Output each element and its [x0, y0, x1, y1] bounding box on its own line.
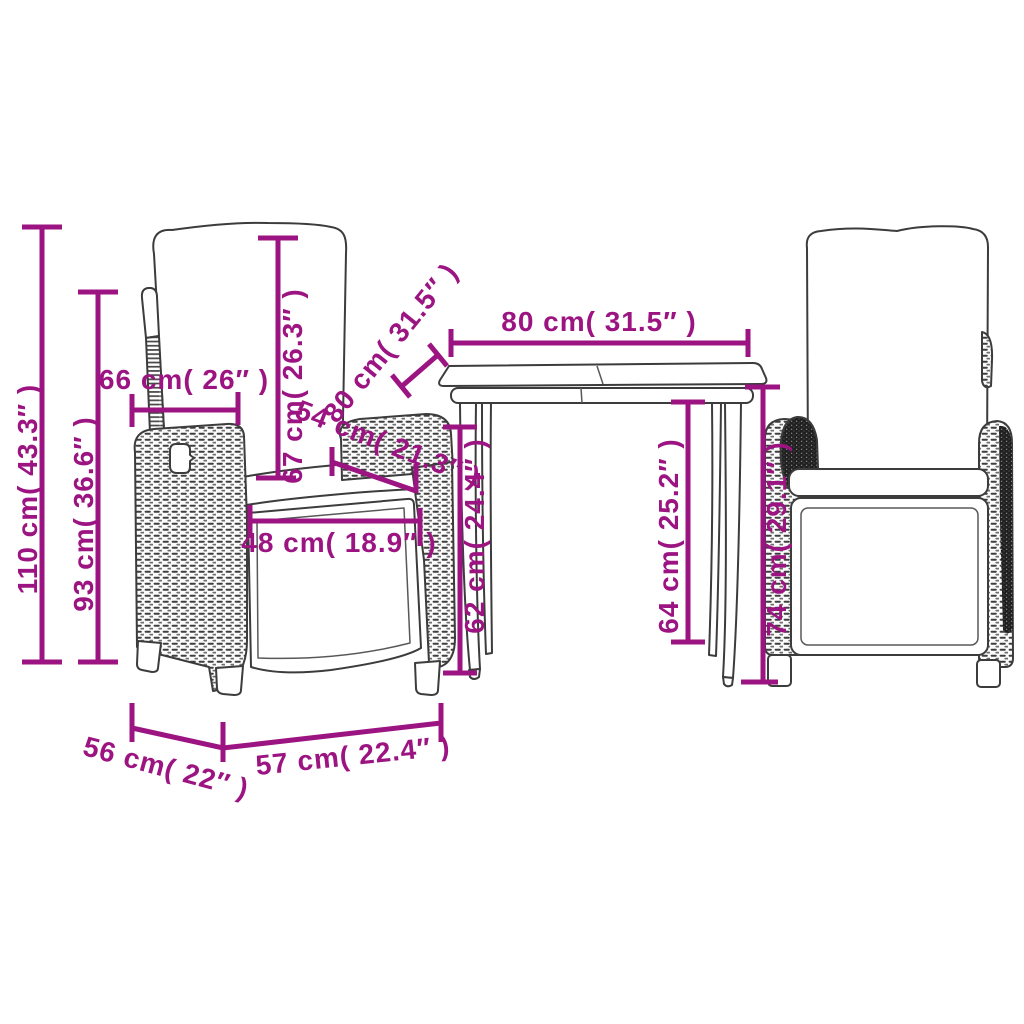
table-leg-back-right	[709, 403, 721, 656]
left-chair-mid-foot	[216, 666, 243, 695]
dim-label-backrest-height: 67 cm( 26.3″ )	[277, 288, 309, 484]
dim-label-seat-clearance: 62 cm( 24.4″ )	[459, 438, 491, 634]
dim-label-chair-back-height: 93 cm( 36.6″ )	[68, 416, 100, 612]
furniture-illustration	[0, 0, 1024, 1024]
right-chair	[765, 226, 1013, 687]
dim-label-chair-back-width: 66 cm( 26″ )	[99, 364, 269, 396]
right-chair-back-cushion	[807, 226, 988, 482]
table-leg-front-right	[723, 403, 741, 678]
table-foot-right	[723, 677, 733, 686]
left-chair-front-foot	[415, 661, 440, 695]
right-chair-seat-cushion	[789, 469, 988, 496]
dim-label-table-width: 80 cm( 31.5″ )	[501, 306, 697, 338]
dim-label-table-height: 74 cm( 29.1″ )	[761, 441, 793, 637]
left-chair-rear-foot	[137, 641, 161, 672]
dim-label-table-clearance: 64 cm( 25.2″ )	[653, 438, 685, 634]
right-chair-back-weave-edge	[982, 332, 992, 387]
left-chair-recline-rod-handle	[142, 288, 159, 338]
product-dimension-diagram: 110 cm( 43.3″ ) 93 cm( 36.6″ ) 66 cm( 26…	[0, 0, 1024, 1024]
right-chair-front-panel	[791, 498, 988, 655]
dim-label-chair-total-height: 110 cm( 43.3″ )	[12, 384, 44, 595]
table-apron-split	[581, 388, 582, 403]
table-apron	[451, 388, 753, 403]
dim-label-seat-width: 48 cm( 18.9″ )	[241, 527, 437, 559]
left-chair-recline-knob	[170, 444, 194, 473]
right-chair-right-foot	[977, 660, 1000, 687]
